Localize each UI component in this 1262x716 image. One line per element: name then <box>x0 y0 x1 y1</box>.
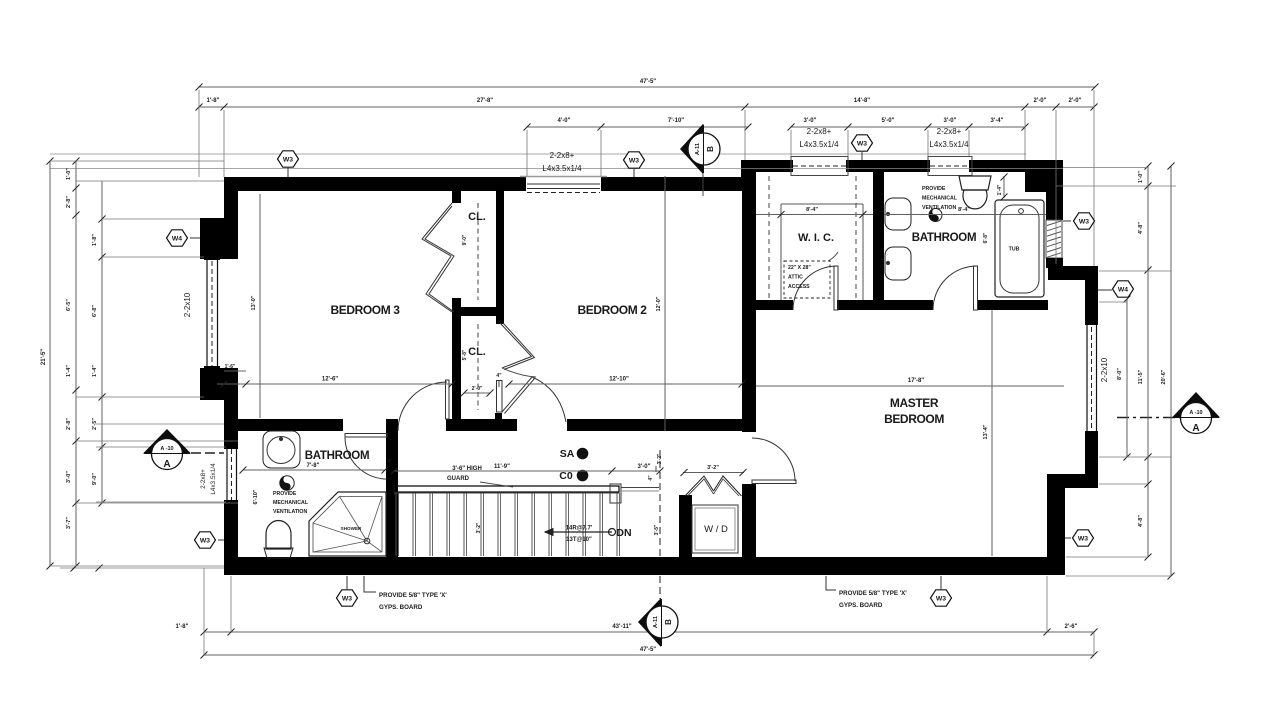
svg-text:2-2x8+: 2-2x8+ <box>807 127 832 136</box>
svg-text:13'-0": 13'-0" <box>251 295 257 310</box>
svg-text:3'-2": 3'-2" <box>476 522 482 533</box>
svg-text:2'-6": 2'-6" <box>1065 624 1078 630</box>
svg-text:20'-6": 20'-6" <box>1161 369 1167 384</box>
svg-text:43'-11": 43'-11" <box>612 624 631 630</box>
svg-text:A-11: A-11 <box>695 142 701 155</box>
svg-text:GYPS. BOARD: GYPS. BOARD <box>839 602 883 609</box>
svg-text:DN: DN <box>616 527 631 539</box>
svg-text:21'-5": 21'-5" <box>41 349 47 365</box>
svg-text:W4: W4 <box>1118 286 1128 293</box>
svg-text:3'-2": 3'-2" <box>707 465 719 471</box>
svg-text:2'-0": 2'-0" <box>472 386 483 392</box>
svg-text:47'-5": 47'-5" <box>640 647 656 653</box>
svg-text:9'-0": 9'-0" <box>92 473 98 485</box>
svg-text:BATHROOM: BATHROOM <box>305 450 369 462</box>
svg-text:2-2x8+: 2-2x8+ <box>937 127 962 136</box>
svg-text:BATHROOM: BATHROOM <box>912 232 976 244</box>
svg-text:CL.: CL. <box>468 211 486 223</box>
svg-text:W3: W3 <box>857 140 867 147</box>
svg-text:6'-5": 6'-5" <box>66 299 72 311</box>
svg-text:6'-8": 6'-8" <box>983 232 989 243</box>
svg-text:3'-7": 3'-7" <box>66 517 72 529</box>
svg-text:TUB: TUB <box>1009 247 1020 253</box>
svg-text:2'-8": 2'-8" <box>66 196 72 208</box>
svg-text:W3: W3 <box>1078 535 1088 542</box>
svg-text:A -10: A -10 <box>160 446 173 452</box>
svg-text:L4x3.5x1/4: L4x3.5x1/4 <box>799 140 839 149</box>
svg-text:4'-8": 4'-8" <box>1138 515 1144 527</box>
svg-text:22" X 28": 22" X 28" <box>788 265 811 271</box>
svg-text:5'-0": 5'-0" <box>882 118 895 124</box>
svg-text:W3: W3 <box>629 157 639 164</box>
svg-text:6'-8": 6'-8" <box>92 305 98 317</box>
svg-text:2'-0": 2'-0" <box>1034 98 1047 104</box>
svg-text:ACCESS: ACCESS <box>788 284 810 290</box>
svg-text:W3: W3 <box>200 537 210 544</box>
svg-text:A -10: A -10 <box>1189 410 1202 416</box>
svg-text:MECHANICAL: MECHANICAL <box>273 500 309 506</box>
svg-text:SHOWER: SHOWER <box>341 526 362 531</box>
svg-text:3'-0": 3'-0" <box>804 118 817 124</box>
svg-text:MASTER: MASTER <box>890 396 939 410</box>
svg-text:11'-5": 11'-5" <box>1138 369 1144 384</box>
svg-text:5'-8": 5'-8" <box>462 349 468 360</box>
svg-text:VENTILATION: VENTILATION <box>922 205 956 211</box>
svg-text:C0: C0 <box>559 470 573 482</box>
svg-text:1'-8": 1'-8" <box>207 98 220 104</box>
svg-text:3'-5": 3'-5" <box>654 524 660 535</box>
svg-text:13T@10": 13T@10" <box>566 537 592 543</box>
svg-text:BEDROOM 2: BEDROOM 2 <box>577 303 647 317</box>
svg-text:A-11: A-11 <box>653 615 659 628</box>
svg-text:PROVIDE: PROVIDE <box>273 491 297 497</box>
svg-text:1'-4": 1'-4" <box>997 184 1003 195</box>
svg-text:1'-4": 1'-4" <box>92 365 98 377</box>
svg-text:12'-6": 12'-6" <box>322 377 338 383</box>
svg-text:7'-10": 7'-10" <box>668 118 684 124</box>
svg-text:A: A <box>1192 423 1199 434</box>
svg-text:L4x3.5x1/4: L4x3.5x1/4 <box>929 140 969 149</box>
svg-text:7'-8": 7'-8" <box>307 463 320 469</box>
svg-text:2-2x10: 2-2x10 <box>1100 357 1109 382</box>
svg-text:12'-0": 12'-0" <box>656 296 662 311</box>
svg-text:W3: W3 <box>1079 218 1089 225</box>
svg-text:9'-0": 9'-0" <box>462 234 468 245</box>
svg-text:27'-8": 27'-8" <box>477 98 493 104</box>
svg-text:PROVIDE 5/8" TYPE 'X': PROVIDE 5/8" TYPE 'X' <box>839 590 907 597</box>
svg-text:1'-0": 1'-0" <box>66 168 72 180</box>
svg-text:PROVIDE 5/8" TYPE 'X': PROVIDE 5/8" TYPE 'X' <box>379 592 447 599</box>
svg-text:B: B <box>706 146 715 152</box>
svg-text:11'-9": 11'-9" <box>494 464 510 470</box>
svg-text:4'-8": 4'-8" <box>1138 222 1144 234</box>
svg-text:8'-4": 8'-4" <box>806 207 818 213</box>
svg-text:2-2x10: 2-2x10 <box>183 292 192 317</box>
svg-text:W3: W3 <box>936 595 946 602</box>
svg-text:GYPS. BOARD: GYPS. BOARD <box>379 604 423 611</box>
svg-text:1'-8": 1'-8" <box>176 624 189 630</box>
svg-text:GUARD: GUARD <box>447 476 470 482</box>
svg-text:2-2x8+: 2-2x8+ <box>550 151 575 160</box>
svg-text:2-2x8+: 2-2x8+ <box>200 469 207 489</box>
svg-text:3'-0": 3'-0" <box>66 471 72 483</box>
svg-text:1'-4": 1'-4" <box>66 365 72 377</box>
svg-text:3'-0": 3'-0" <box>944 118 957 124</box>
svg-text:L4x3.5x1/4: L4x3.5x1/4 <box>542 164 582 173</box>
svg-text:L4x3.5x1/4: L4x3.5x1/4 <box>210 463 217 495</box>
svg-text:VENTILATION: VENTILATION <box>273 509 307 515</box>
svg-text:2'-8": 2'-8" <box>66 418 72 430</box>
svg-text:BEDROOM: BEDROOM <box>884 412 944 426</box>
svg-text:1'-6": 1'-6" <box>225 364 236 370</box>
svg-text:MECHANICAL: MECHANICAL <box>922 196 958 202</box>
svg-text:47'-5": 47'-5" <box>640 79 656 85</box>
svg-text:3'-4": 3'-4" <box>991 118 1004 124</box>
svg-text:1'-8": 1'-8" <box>92 234 98 246</box>
svg-text:2'-0": 2'-0" <box>1069 98 1082 104</box>
svg-text:14'-8": 14'-8" <box>854 98 870 104</box>
svg-text:W / D: W / D <box>704 524 728 535</box>
svg-text:13'-4": 13'-4" <box>983 424 989 439</box>
svg-text:B: B <box>664 619 673 625</box>
svg-text:17'-8": 17'-8" <box>908 378 924 384</box>
svg-text:BEDROOM 3: BEDROOM 3 <box>330 303 400 317</box>
svg-text:A: A <box>163 459 170 470</box>
svg-text:W3: W3 <box>342 595 352 602</box>
svg-text:W. I. C.: W. I. C. <box>798 232 834 244</box>
svg-text:12'-10": 12'-10" <box>609 377 629 383</box>
svg-text:3'-0": 3'-0" <box>638 464 651 470</box>
svg-text:CL.: CL. <box>468 346 486 358</box>
svg-text:6'-10": 6'-10" <box>253 489 259 504</box>
svg-text:SA: SA <box>560 448 575 460</box>
svg-text:8'-0": 8'-0" <box>1117 368 1123 380</box>
svg-text:8'-4": 8'-4" <box>958 207 970 213</box>
svg-text:4": 4" <box>496 373 502 379</box>
svg-text:ATTIC: ATTIC <box>788 275 803 281</box>
svg-text:14R@7.7': 14R@7.7' <box>566 526 593 532</box>
svg-text:1'-0": 1'-0" <box>1138 171 1144 183</box>
svg-text:4": 4" <box>387 459 393 465</box>
svg-text:W3: W3 <box>283 156 293 163</box>
svg-text:4": 4" <box>648 475 654 481</box>
svg-text:W4: W4 <box>172 235 182 242</box>
svg-text:4'-0": 4'-0" <box>558 118 571 124</box>
svg-text:PROVIDE: PROVIDE <box>922 186 946 192</box>
